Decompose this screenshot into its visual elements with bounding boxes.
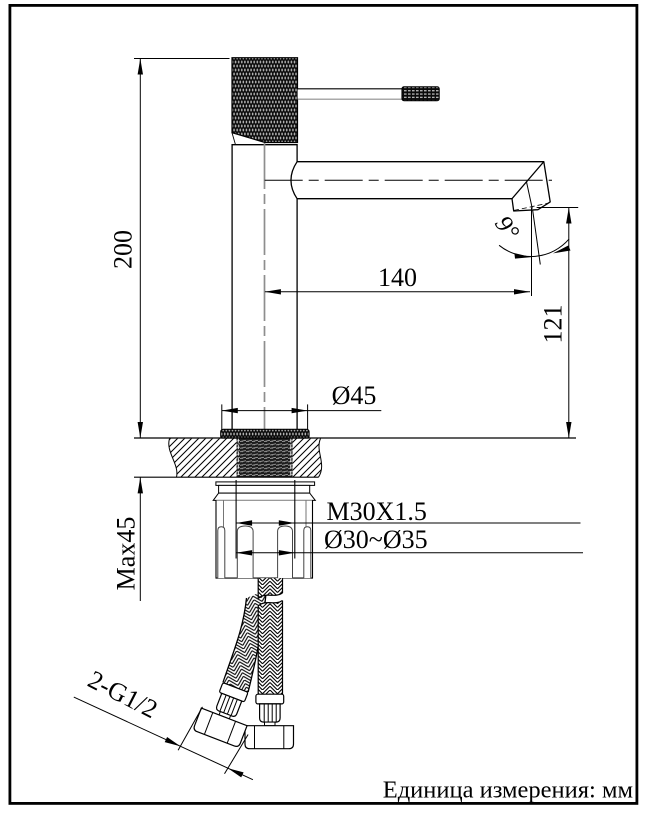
svg-text:Ø30~Ø35: Ø30~Ø35 [324,525,428,554]
svg-text:Единица измерения: мм: Единица измерения: мм [383,777,633,804]
svg-text:M30X1.5: M30X1.5 [327,497,427,526]
svg-text:140: 140 [378,263,417,292]
svg-text:Max45: Max45 [112,517,141,591]
svg-text:200: 200 [109,230,138,269]
svg-text:121: 121 [539,305,568,344]
svg-text:Ø45: Ø45 [332,381,377,410]
